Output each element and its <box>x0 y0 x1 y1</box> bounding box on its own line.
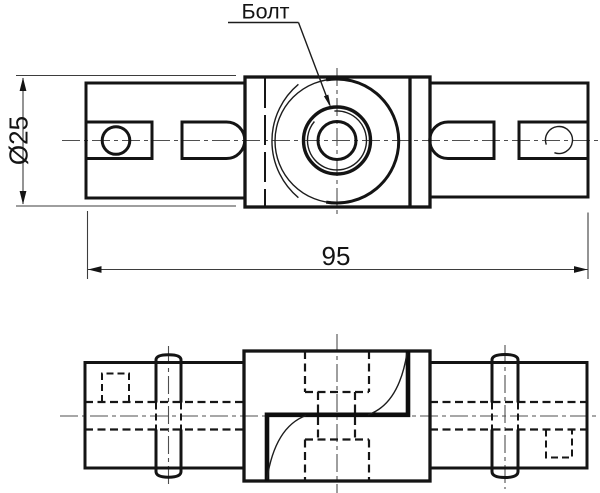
hidden-pocket-right <box>546 430 572 458</box>
arrowhead-right <box>574 266 588 273</box>
arrowhead-up <box>20 78 27 92</box>
drawing-svg: Ø25 95 Болт <box>0 0 600 493</box>
arrowhead-down <box>20 191 27 205</box>
callout-arrowhead <box>324 95 331 108</box>
dimension-length: 95 <box>88 211 589 279</box>
bolt-callout-text: Болт <box>242 0 290 24</box>
callout-leader-line <box>299 23 330 105</box>
sphere-arc-lower <box>267 416 306 480</box>
dimension-diameter: Ø25 <box>4 76 237 207</box>
technical-drawing: Ø25 95 Болт <box>0 0 600 493</box>
length-dimension-text: 95 <box>322 241 351 271</box>
hidden-pocket-left <box>102 374 129 403</box>
top-view <box>62 68 598 216</box>
diameter-dimension-text: Ø25 <box>4 116 34 165</box>
bottom-view <box>60 334 598 493</box>
left-arm-outline-bottom <box>85 363 244 469</box>
arrowhead-left <box>88 266 102 273</box>
sphere-arc-upper <box>368 353 407 415</box>
right-arm-outline-bottom <box>430 363 587 469</box>
